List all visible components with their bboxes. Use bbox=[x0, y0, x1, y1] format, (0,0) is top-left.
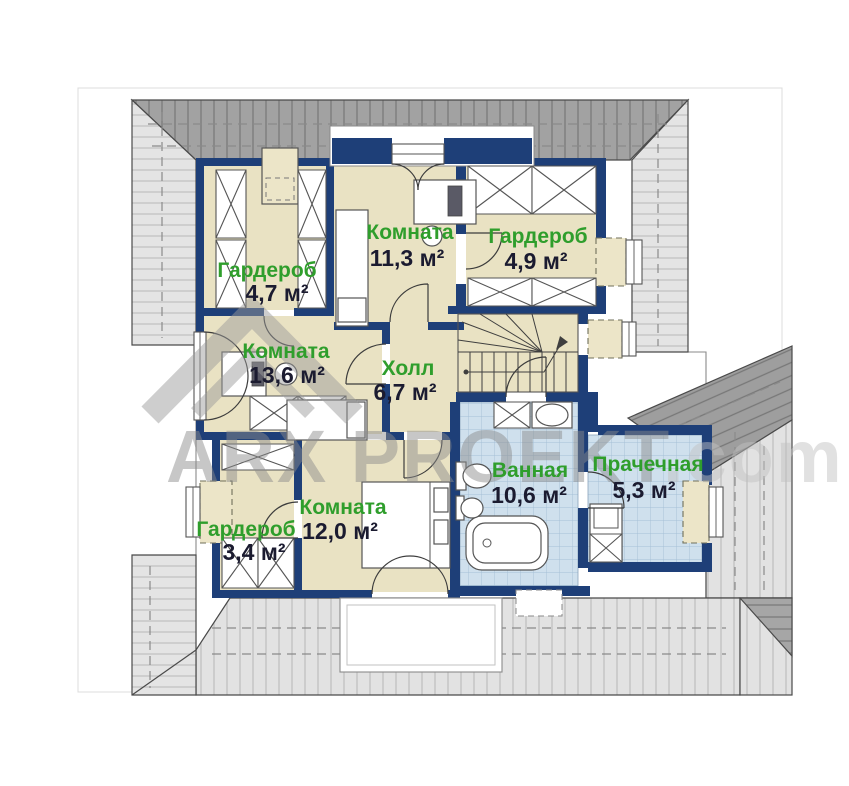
roof-bottom-left-band bbox=[132, 555, 196, 695]
room-area: 12,0 м² bbox=[302, 518, 378, 544]
computer-icon bbox=[448, 186, 462, 216]
bath-bottom-bay bbox=[516, 590, 562, 616]
bed-pillow bbox=[434, 520, 448, 544]
floor-plan-page: ARX PROEKT.com Гардероб 4,7 м² Комната 1… bbox=[0, 0, 849, 786]
balcony bbox=[340, 598, 502, 672]
room-name: Гардероб bbox=[488, 225, 587, 248]
room-area: 6,7 м² bbox=[373, 379, 436, 405]
room-name: Гардероб bbox=[196, 518, 295, 541]
wardrobe-icon bbox=[468, 278, 532, 306]
wardrobe-icon bbox=[468, 166, 532, 214]
room-area: 10,6 м² bbox=[491, 482, 567, 508]
wardrobe-icon bbox=[532, 278, 596, 306]
floor-plan-drawing: ARX PROEKT.com Гардероб 4,7 м² Комната 1… bbox=[0, 0, 849, 786]
room-area: 5,3 м² bbox=[612, 477, 675, 503]
room-name: Прачечная bbox=[592, 453, 703, 476]
wardrobe-icon bbox=[216, 170, 246, 238]
room-area: 11,3 м² bbox=[370, 245, 445, 271]
room-name: Холл bbox=[382, 357, 435, 380]
room-area: 4,7 м² bbox=[245, 280, 308, 306]
bidet bbox=[461, 498, 483, 518]
window-bay-garderob-right bbox=[596, 238, 626, 286]
room-area: 4,9 м² bbox=[504, 248, 567, 274]
room-name: Гардероб bbox=[217, 259, 316, 282]
room-area: 3,4 м² bbox=[222, 539, 285, 565]
desk bbox=[414, 180, 476, 224]
room-name: Ванная bbox=[492, 459, 568, 482]
wardrobe-icon bbox=[532, 166, 596, 214]
room-name: Комната bbox=[366, 221, 454, 244]
window-bay-holl bbox=[588, 320, 622, 358]
chimney bbox=[262, 148, 298, 204]
wardrobe-icon bbox=[298, 170, 326, 238]
bed-pillow bbox=[338, 298, 366, 322]
room-name: Комната bbox=[299, 496, 387, 519]
room-name: Комната bbox=[242, 340, 330, 363]
room-area: 13,6 м² bbox=[249, 362, 325, 388]
